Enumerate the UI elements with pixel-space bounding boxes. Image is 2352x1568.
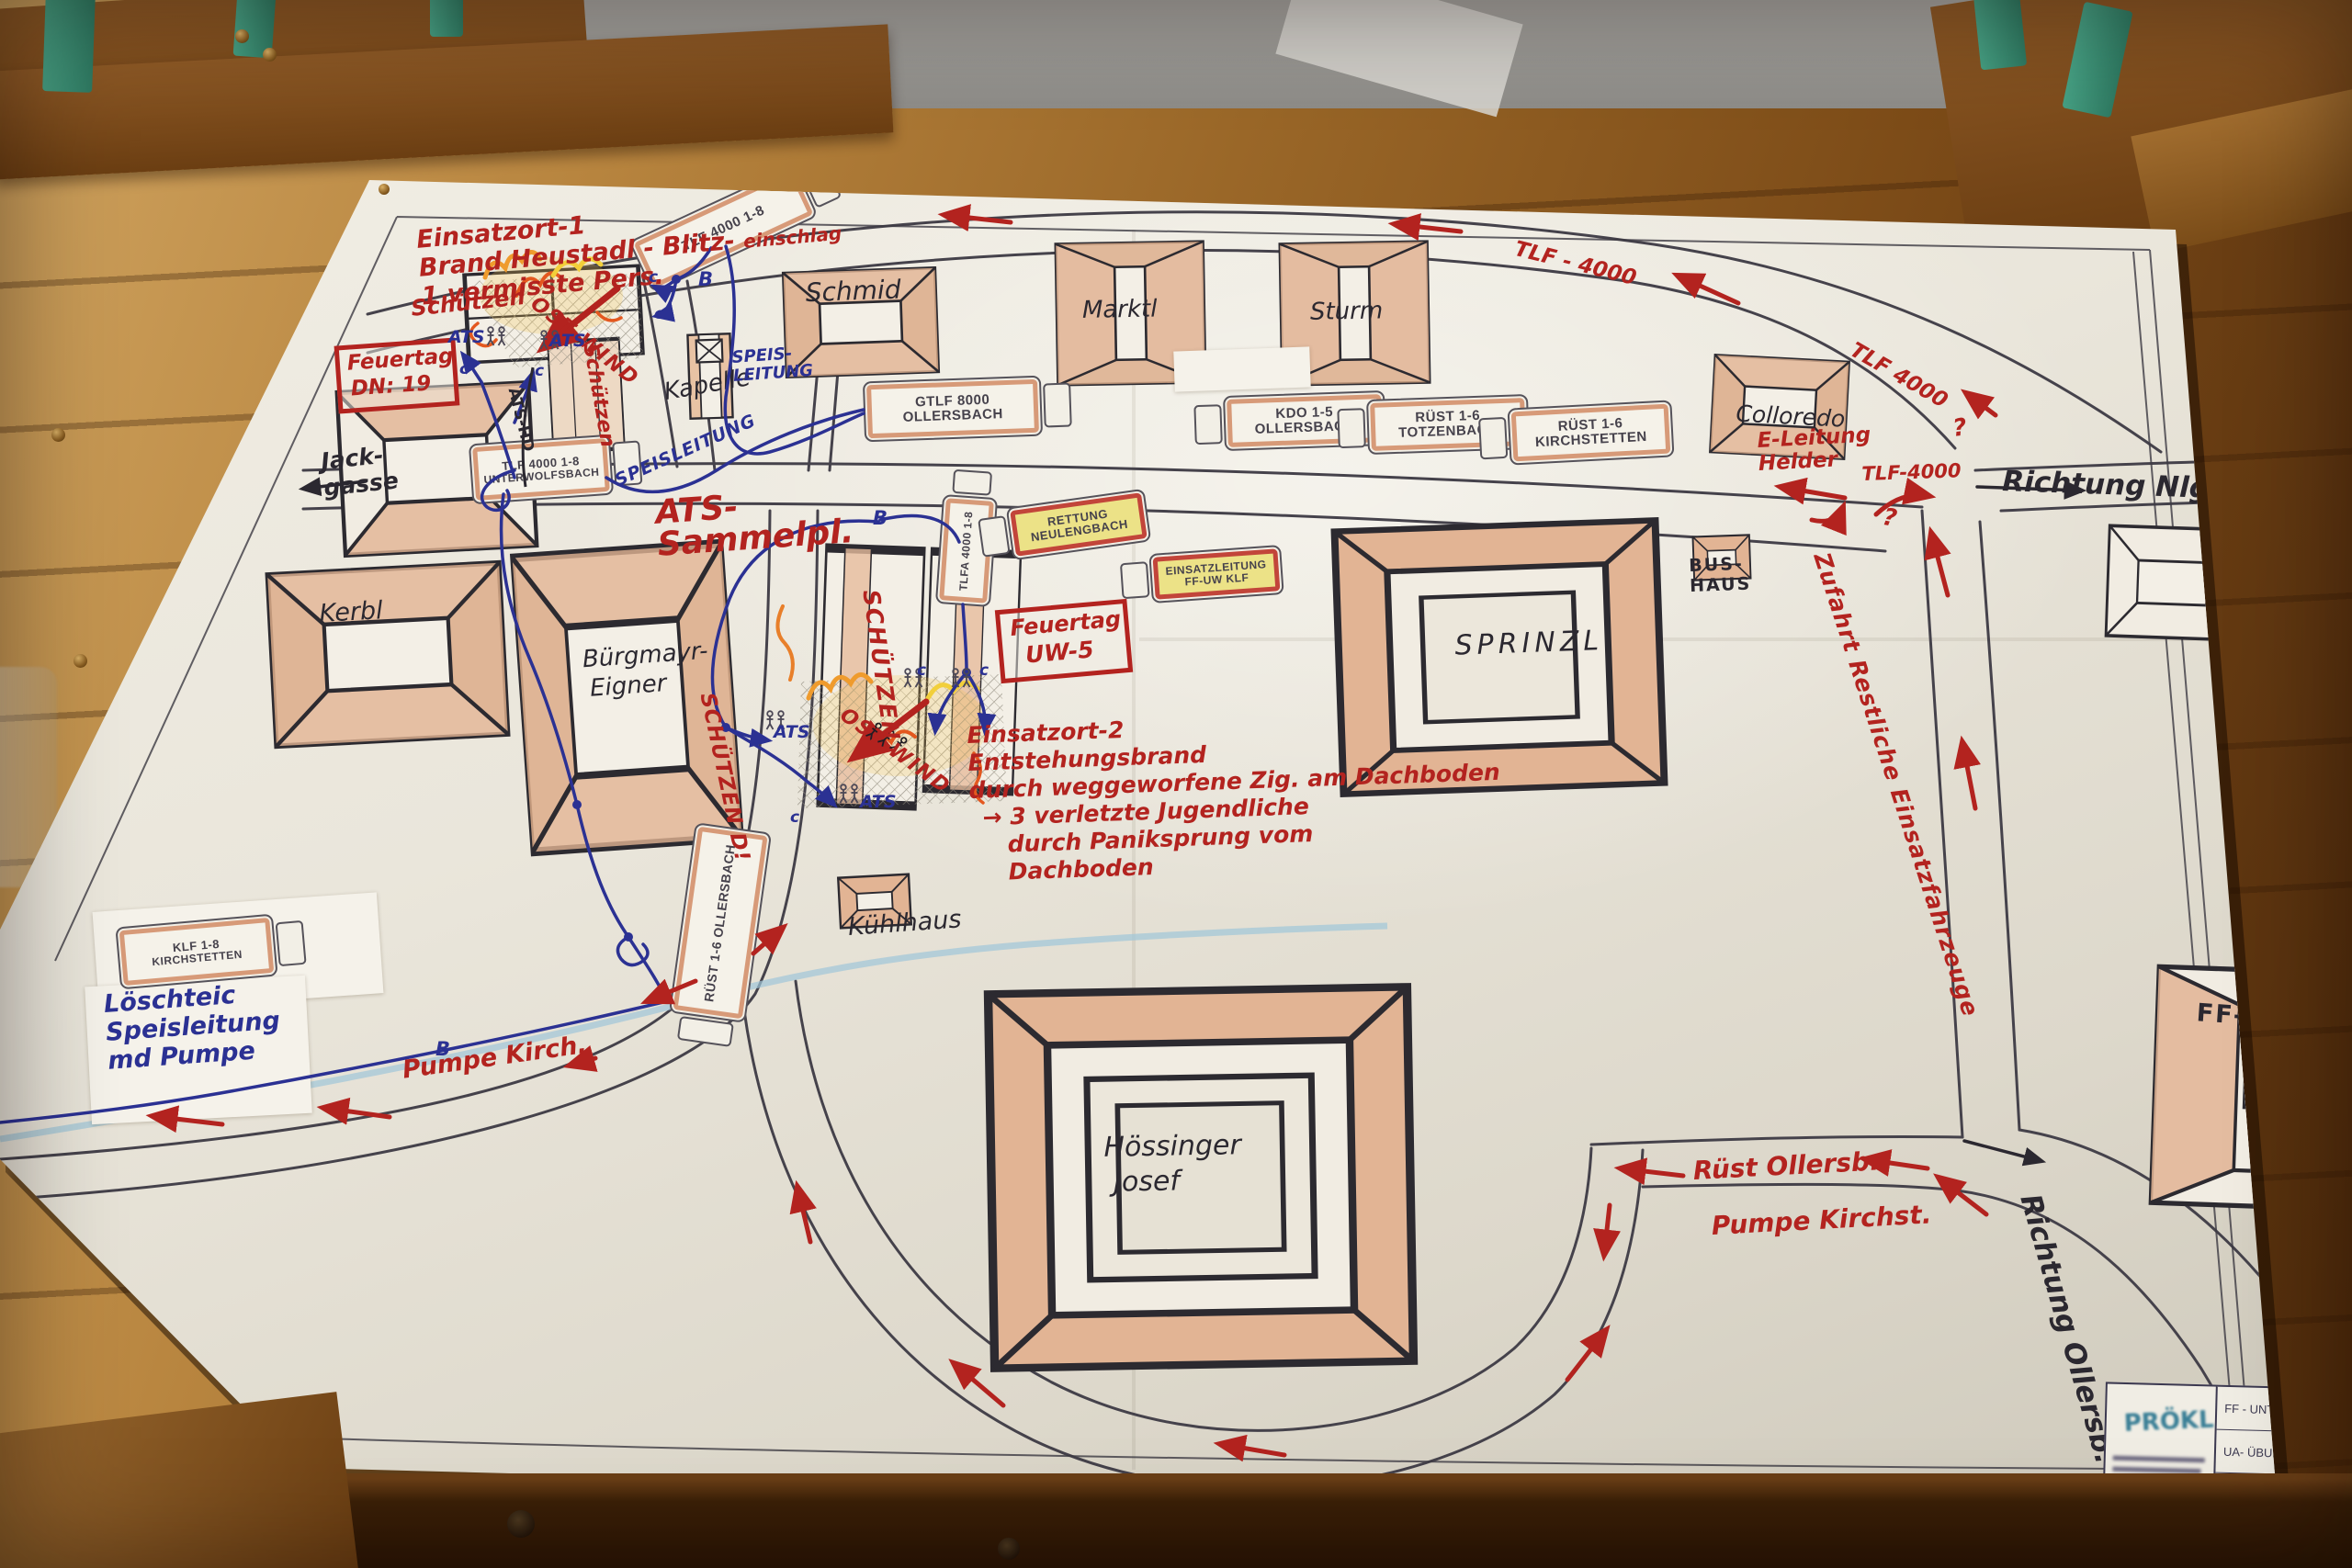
map-paper: Schmid Marktl Sturm Kapelle Colloredo Ke… bbox=[0, 0, 2352, 1568]
bolt bbox=[507, 1510, 535, 1538]
ats-label: ATS bbox=[448, 327, 485, 347]
railing-post bbox=[430, 0, 463, 37]
screw bbox=[73, 654, 87, 668]
stamp-fine-print bbox=[2113, 1456, 2205, 1463]
hose-c-label: c bbox=[790, 808, 799, 827]
ats-label: ATS bbox=[860, 792, 897, 812]
hose-c-label: c bbox=[649, 268, 658, 287]
photo-of-incident-map: Schmid Marktl Sturm Kapelle Colloredo Ke… bbox=[0, 0, 2352, 1568]
screw bbox=[263, 48, 277, 62]
feuertag-box-2: Feuertag UW-5 bbox=[995, 599, 1133, 683]
hose-c-label: c bbox=[917, 661, 926, 680]
jackgasse-label: Jack- gasse bbox=[320, 440, 400, 501]
feuertag1-label: Feuertag bbox=[346, 344, 454, 376]
feuertag1-label: DN: 19 bbox=[350, 371, 432, 400]
eleitung-label: E-Leitung Helder bbox=[1757, 424, 1872, 477]
hose-c-label: c bbox=[979, 661, 989, 680]
bushaus-label: BUS- HAUS bbox=[1689, 555, 1752, 597]
feuertag2-label: Feuertag bbox=[1009, 606, 1122, 641]
bolt bbox=[998, 1538, 1020, 1560]
railing-post bbox=[42, 0, 96, 93]
feuertag-box-1: Feuertag DN: 19 bbox=[334, 337, 460, 413]
hose-b-label: B bbox=[698, 268, 713, 290]
ats-label: ATS bbox=[549, 331, 586, 351]
incident2-note: Einsatzort-2 Entstehungsbrand durch wegg… bbox=[967, 704, 1503, 887]
question-mark: ? bbox=[1951, 413, 1968, 442]
tlf4000-junction-label: TLF-4000 bbox=[1861, 459, 1962, 485]
screw bbox=[235, 29, 249, 43]
speisleitung-label-2line: SPEIS- LEITUNG bbox=[731, 344, 814, 386]
bushaus-l2: HAUS bbox=[1690, 574, 1752, 596]
hose-b-label: B bbox=[435, 1038, 450, 1060]
hose-b-label: B bbox=[873, 507, 888, 529]
feuertag2-label: UW-5 bbox=[1024, 636, 1095, 668]
loeschteich-note: Löschteic Speisleitung md Pumpe bbox=[103, 978, 283, 1076]
ats-label: ATS bbox=[774, 722, 810, 742]
railing-post bbox=[1973, 0, 2027, 70]
company-stamp: PRÖKL bbox=[2123, 1406, 2214, 1438]
hose-c-label: c bbox=[459, 360, 469, 378]
hose-c-label: c bbox=[535, 362, 544, 380]
ats-sammelplatz-label: ATS- Sammelpl. bbox=[654, 480, 855, 564]
hose-c-label: c bbox=[654, 305, 663, 323]
screw bbox=[51, 428, 65, 442]
